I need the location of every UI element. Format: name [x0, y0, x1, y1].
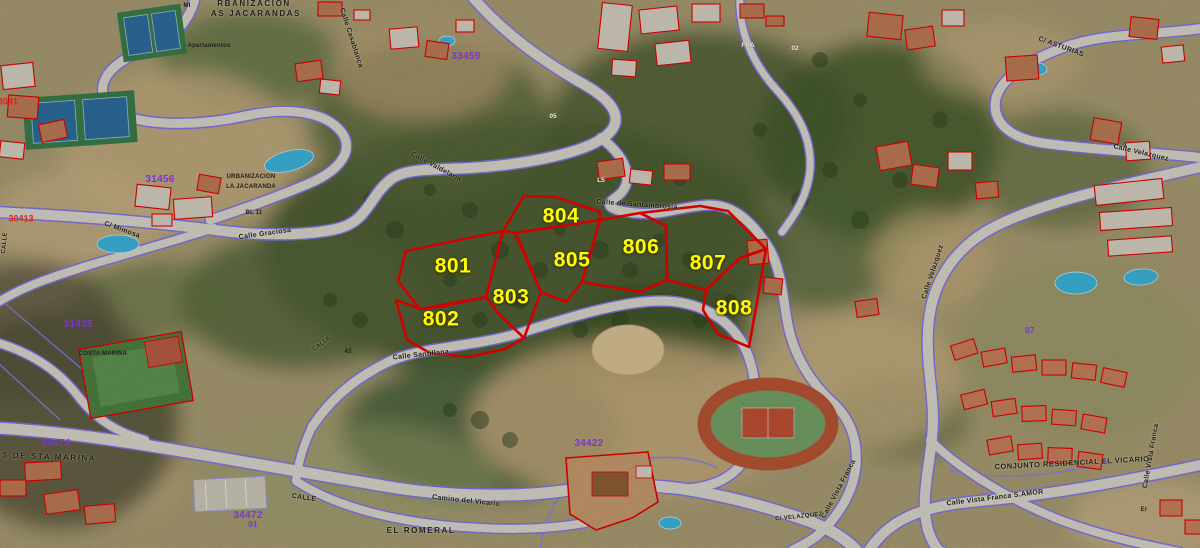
- map-canvas[interactable]: 801802803804805806807808Calle de Santamb…: [0, 0, 1200, 548]
- noise-overlay: [0, 0, 1200, 548]
- map-graphics: [0, 0, 1200, 548]
